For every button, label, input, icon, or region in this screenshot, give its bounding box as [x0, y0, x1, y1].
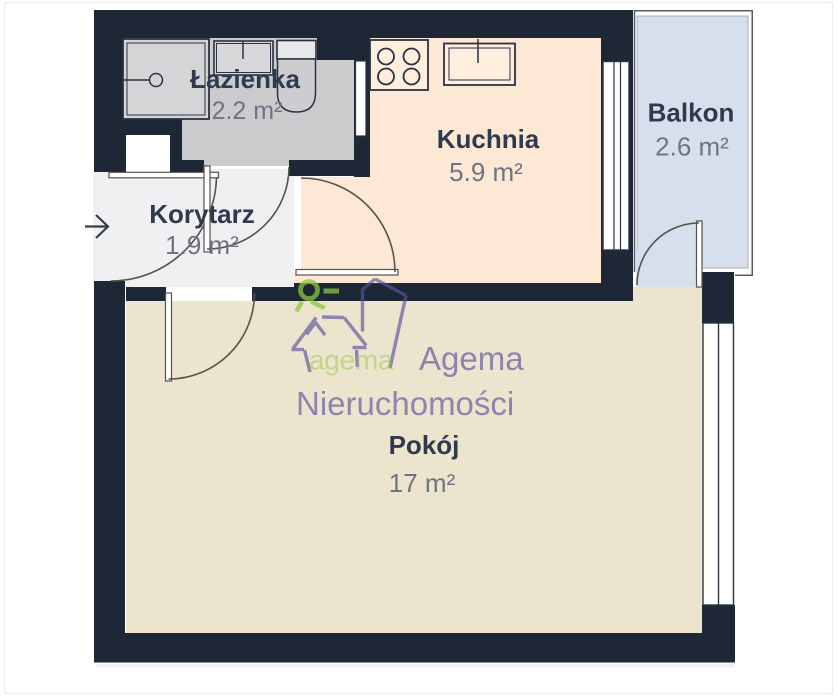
svg-text:agema: agema [309, 345, 394, 376]
svg-text:Nieruchomości: Nieruchomości [296, 385, 514, 422]
svg-text:1.9 m²: 1.9 m² [165, 230, 239, 260]
svg-text:Kuchnia: Kuchnia [437, 124, 540, 154]
svg-text:2.6 m²: 2.6 m² [655, 132, 729, 162]
svg-text:Korytarz: Korytarz [149, 199, 254, 229]
svg-text:Łazienka: Łazienka [190, 64, 300, 94]
svg-text:Agema: Agema [419, 340, 524, 377]
svg-text:2.2 m²: 2.2 m² [212, 97, 283, 125]
svg-text:Pokój: Pokój [389, 430, 460, 460]
svg-text:5.9 m²: 5.9 m² [449, 157, 523, 187]
svg-text:Balkon: Balkon [648, 98, 735, 128]
svg-text:17 m²: 17 m² [389, 468, 456, 498]
